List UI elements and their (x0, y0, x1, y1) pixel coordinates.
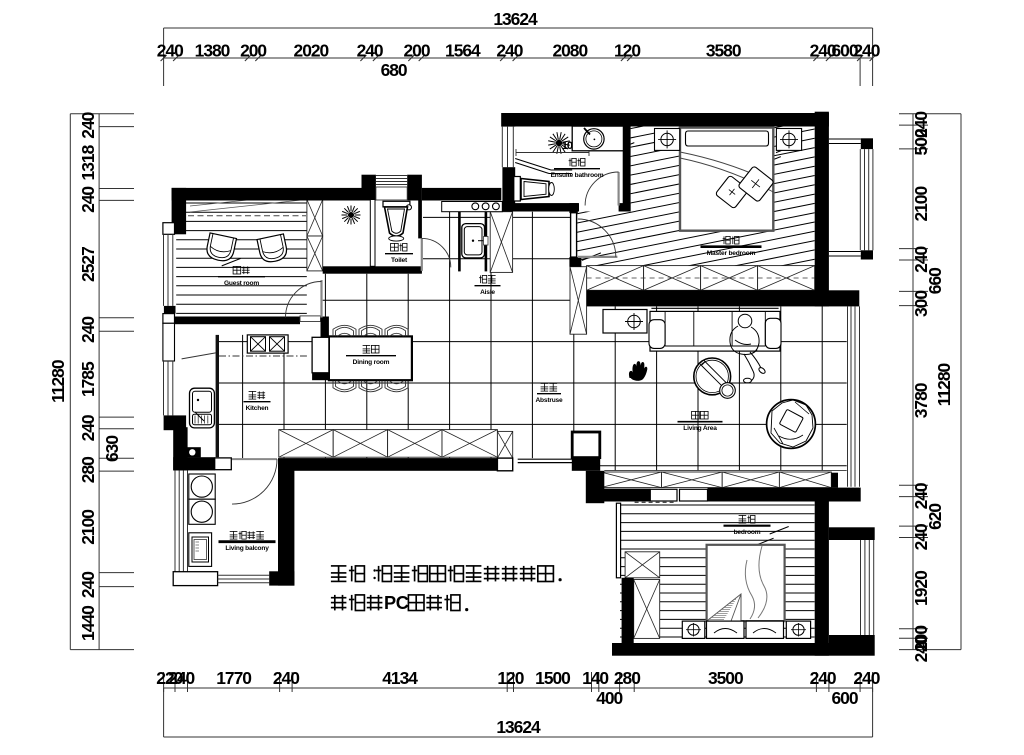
svg-text:240: 240 (911, 524, 931, 550)
svg-text:660: 660 (925, 268, 945, 294)
svg-text:2020: 2020 (294, 41, 329, 61)
svg-text:240: 240 (810, 668, 836, 688)
svg-text:3580: 3580 (706, 41, 741, 61)
svg-text:280: 280 (78, 457, 98, 483)
svg-text:bedroom: bedroom (734, 529, 761, 536)
svg-text:4134: 4134 (382, 668, 418, 688)
svg-text:1785: 1785 (78, 361, 98, 397)
svg-text:240: 240 (853, 41, 879, 61)
svg-text:600: 600 (831, 688, 857, 708)
svg-text:240: 240 (496, 41, 522, 61)
svg-text:300: 300 (911, 291, 931, 317)
svg-text:630: 630 (102, 436, 122, 462)
svg-text:240: 240 (168, 668, 194, 688)
svg-text:Toilet: Toilet (391, 257, 408, 264)
svg-text:P: P (384, 593, 396, 613)
svg-text:240: 240 (78, 572, 98, 598)
svg-text:Abstruse: Abstruse (536, 397, 564, 404)
svg-text:Guest room: Guest room (224, 280, 259, 287)
svg-text:2527: 2527 (78, 247, 98, 282)
svg-text:Kitchen: Kitchen (246, 405, 269, 412)
svg-text:11280: 11280 (934, 363, 954, 406)
svg-text:Living Area: Living Area (683, 425, 717, 432)
svg-text:120: 120 (614, 41, 640, 61)
svg-text:120: 120 (497, 668, 523, 688)
svg-text:680: 680 (381, 60, 407, 80)
svg-text:200: 200 (403, 41, 429, 61)
svg-text:1380: 1380 (195, 41, 230, 61)
svg-text:280: 280 (614, 668, 640, 688)
svg-text:200: 200 (240, 41, 266, 61)
svg-text:1500: 1500 (535, 668, 570, 688)
svg-text:1920: 1920 (911, 571, 931, 606)
svg-text:Dining room: Dining room (353, 359, 390, 366)
svg-text:3500: 3500 (708, 668, 743, 688)
svg-text:240: 240 (78, 112, 98, 138)
svg-text:13624: 13624 (493, 9, 538, 29)
svg-text:Ensuite bathroom: Ensuite bathroom (551, 172, 604, 179)
svg-text:500: 500 (911, 129, 931, 155)
svg-text:Living balcony: Living balcony (225, 545, 269, 552)
svg-text:13624: 13624 (496, 717, 541, 737)
svg-text:2080: 2080 (552, 41, 587, 61)
svg-text:240: 240 (911, 636, 931, 662)
svg-text:240: 240 (78, 415, 98, 441)
svg-text:1564: 1564 (445, 41, 481, 61)
svg-text:Aisle: Aisle (480, 289, 495, 296)
svg-text:Master bedroom: Master bedroom (707, 250, 756, 257)
svg-text:240: 240 (78, 317, 98, 343)
svg-text:240: 240 (78, 187, 98, 213)
svg-text:400: 400 (596, 688, 622, 708)
svg-text:1318: 1318 (78, 144, 98, 180)
svg-text:240: 240 (357, 41, 383, 61)
svg-text:1440: 1440 (78, 606, 98, 641)
svg-text:11280: 11280 (48, 360, 68, 403)
svg-text:C: C (396, 593, 409, 613)
svg-text:2100: 2100 (78, 510, 98, 545)
svg-text:2100: 2100 (911, 187, 931, 222)
svg-text:140: 140 (582, 668, 608, 688)
svg-text:1770: 1770 (216, 668, 251, 688)
svg-text:240: 240 (273, 668, 299, 688)
svg-text:240: 240 (157, 41, 183, 61)
svg-text:3780: 3780 (911, 383, 931, 418)
svg-text:240: 240 (853, 668, 879, 688)
